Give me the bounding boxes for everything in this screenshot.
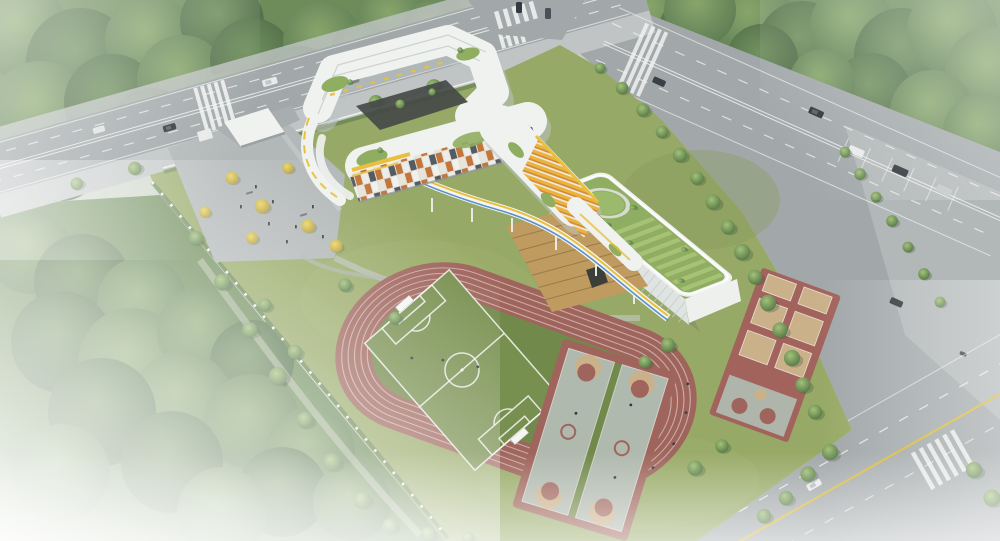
car <box>545 8 551 19</box>
car <box>516 2 522 13</box>
campus-rendering-canvas <box>0 0 1000 541</box>
campus-rendering <box>0 0 1000 541</box>
